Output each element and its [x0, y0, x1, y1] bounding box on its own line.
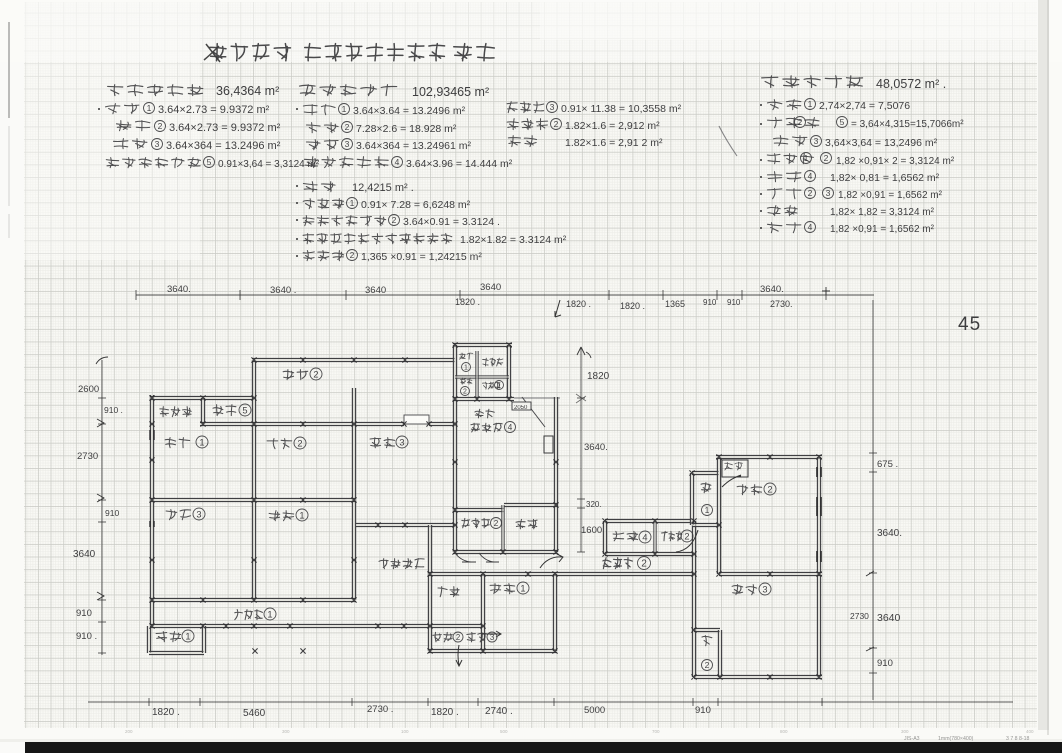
svg-text:1: 1: [350, 198, 355, 208]
svg-text:2050: 2050: [514, 405, 528, 411]
svg-text:1820 .: 1820 .: [152, 707, 180, 718]
svg-text:12,4215 m² .: 12,4215 m² .: [352, 182, 414, 194]
svg-text:2740 .: 2740 .: [485, 706, 513, 717]
svg-text:7.28×2.6 = 18.928 m²: 7.28×2.6 = 18.928 m²: [356, 123, 457, 135]
svg-text:4: 4: [508, 422, 513, 432]
svg-text:1: 1: [267, 609, 272, 619]
svg-text:3640.: 3640.: [167, 284, 191, 295]
svg-text:3.64×364 = 13.2496 m²: 3.64×364 = 13.2496 m²: [166, 140, 281, 152]
svg-text:3640.: 3640.: [877, 528, 902, 539]
svg-text:3: 3: [345, 139, 350, 149]
svg-text:2: 2: [345, 122, 350, 132]
svg-text:2730.: 2730.: [770, 299, 793, 309]
svg-text:3: 3: [155, 139, 160, 149]
svg-text:JIS-A3: JIS-A3: [904, 736, 920, 742]
svg-text:1365: 1365: [665, 299, 685, 309]
svg-text:0.91× 11.38 = 10,3558 m²: 0.91× 11.38 = 10,3558 m²: [561, 103, 682, 115]
svg-text:1,82 ×0,91 = 1,6562 m²: 1,82 ×0,91 = 1,6562 m²: [830, 224, 935, 235]
svg-text:4: 4: [808, 222, 813, 232]
svg-text:675 .: 675 .: [877, 459, 898, 470]
svg-text:1: 1: [299, 510, 304, 520]
svg-text:1,82× 0,81 = 1,6562 m²: 1,82× 0,81 = 1,6562 m²: [830, 172, 940, 184]
svg-text:5460: 5460: [243, 708, 266, 719]
svg-text:5: 5: [242, 405, 247, 415]
svg-text:3.64×2.73 = 9.9372 m²: 3.64×2.73 = 9.9372 m²: [158, 104, 270, 116]
svg-text:1: 1: [520, 583, 525, 593]
svg-text:1.82×1.82 = 3.3124 m²: 1.82×1.82 = 3.3124 m²: [460, 234, 567, 246]
svg-text:910 .: 910 .: [76, 631, 97, 642]
svg-text:4: 4: [642, 532, 647, 542]
svg-text:1: 1: [147, 103, 152, 113]
svg-text:45: 45: [958, 314, 981, 335]
svg-text:910 .: 910 .: [104, 405, 123, 415]
svg-text:2: 2: [705, 660, 710, 670]
svg-text:2: 2: [392, 215, 397, 225]
svg-text:3: 3: [814, 136, 819, 146]
svg-text:48,0572 m² .: 48,0572 m² .: [876, 77, 946, 91]
svg-text:0.91×3,64 = 3,3124 m²: 0.91×3,64 = 3,3124 m²: [218, 159, 320, 170]
svg-text:300: 300: [901, 729, 909, 734]
svg-text:3: 3: [399, 437, 404, 447]
svg-text:1600: 1600: [581, 525, 602, 536]
svg-text:100: 100: [401, 729, 409, 734]
svg-text:2: 2: [824, 153, 829, 163]
svg-text:910: 910: [76, 608, 92, 619]
svg-text:910: 910: [703, 298, 717, 307]
svg-text:3640.: 3640.: [760, 284, 784, 295]
svg-text:400: 400: [1026, 729, 1034, 734]
svg-text:3640 .: 3640 .: [270, 285, 296, 296]
svg-text:910: 910: [727, 298, 741, 307]
svg-text:2: 2: [641, 559, 647, 570]
svg-text:3640.: 3640.: [584, 442, 608, 453]
svg-text:800: 800: [780, 729, 788, 734]
svg-text:3.64×364 = 13.24961 m²: 3.64×364 = 13.24961 m²: [356, 140, 472, 152]
svg-text:2: 2: [684, 531, 689, 541]
svg-text:1: 1: [804, 153, 809, 163]
svg-text:1820 .: 1820 .: [566, 299, 591, 309]
svg-text:2: 2: [158, 121, 163, 131]
svg-text:2: 2: [350, 250, 355, 260]
svg-text:300: 300: [282, 729, 290, 734]
svg-text:0.91× 7.28 = 6,6248 m²: 0.91× 7.28 = 6,6248 m²: [361, 199, 471, 211]
svg-text:2: 2: [767, 484, 772, 494]
svg-text:910: 910: [695, 705, 711, 716]
svg-text:2: 2: [456, 633, 460, 642]
svg-text:3: 3: [762, 584, 767, 594]
svg-text:2: 2: [297, 438, 302, 448]
svg-text:= 3,64×4,315=15,7066m²: = 3,64×4,315=15,7066m²: [851, 119, 964, 130]
svg-text:3.64×3.96 = 14.444 m²: 3.64×3.96 = 14.444 m²: [406, 158, 513, 170]
svg-text:1.82×1.6 = 2,91 2 m²: 1.82×1.6 = 2,91 2 m²: [565, 137, 663, 149]
svg-text:3 7 8 8-18: 3 7 8 8-18: [1006, 736, 1029, 742]
svg-text:1: 1: [705, 505, 710, 515]
svg-text:5: 5: [840, 117, 845, 127]
svg-text:2: 2: [808, 188, 813, 198]
svg-text:4: 4: [808, 171, 813, 181]
svg-text:1820 .: 1820 .: [620, 301, 645, 311]
svg-text:2: 2: [494, 518, 499, 528]
svg-text:5000: 5000: [584, 705, 605, 716]
svg-text:910: 910: [877, 658, 893, 669]
svg-text:500: 500: [500, 729, 508, 734]
svg-text:3.64×0.91 = 3.3124 .: 3.64×0.91 = 3.3124 .: [403, 216, 500, 228]
svg-text:1: 1: [199, 437, 204, 447]
svg-text:1,365 ×0.91 = 1,24215 m²: 1,365 ×0.91 = 1,24215 m²: [361, 251, 482, 263]
svg-text:2: 2: [798, 117, 803, 127]
svg-text:1: 1: [497, 383, 501, 390]
svg-text:2: 2: [463, 389, 467, 396]
svg-text:3640: 3640: [480, 282, 501, 293]
svg-text:1820 .: 1820 .: [431, 707, 459, 718]
svg-text:3640: 3640: [365, 285, 386, 296]
svg-text:1,82 ×0,91× 2 = 3,3124 m²: 1,82 ×0,91× 2 = 3,3124 m²: [836, 156, 955, 167]
svg-text:320.: 320.: [586, 500, 602, 509]
svg-text:2730: 2730: [850, 611, 869, 621]
svg-text:2600: 2600: [78, 384, 99, 395]
svg-text:1: 1: [185, 631, 190, 641]
svg-text:200: 200: [125, 729, 133, 734]
svg-text:3,64×3,64 = 13,2496 m²: 3,64×3,64 = 13,2496 m²: [825, 137, 938, 149]
svg-text:3640: 3640: [73, 549, 96, 560]
svg-text:4: 4: [395, 157, 400, 167]
svg-text:2730 .: 2730 .: [367, 704, 393, 715]
svg-text:1: 1: [342, 104, 347, 114]
svg-text:3: 3: [196, 509, 201, 519]
svg-text:1820 .: 1820 .: [455, 297, 480, 307]
svg-text:1,82 ×0,91 = 1,6562 m²: 1,82 ×0,91 = 1,6562 m²: [838, 190, 943, 201]
svg-text:2: 2: [554, 119, 559, 129]
svg-text:1: 1: [464, 365, 468, 372]
svg-text:2: 2: [313, 369, 318, 379]
svg-text:1820: 1820: [587, 371, 610, 382]
svg-text:700: 700: [652, 729, 660, 734]
svg-text:3.64×3.64 = 13.2496 m²: 3.64×3.64 = 13.2496 m²: [353, 105, 466, 117]
svg-text:36,4364 m²: 36,4364 m²: [216, 84, 279, 98]
svg-text:102,93465 m²: 102,93465 m²: [412, 85, 489, 99]
svg-text:3: 3: [826, 188, 831, 198]
svg-text:1: 1: [808, 99, 813, 109]
svg-text:3.64×2.73 = 9.9372 m²: 3.64×2.73 = 9.9372 m²: [169, 122, 281, 134]
svg-text:2730: 2730: [77, 451, 98, 462]
svg-text:5: 5: [207, 157, 212, 167]
svg-text:3: 3: [550, 102, 555, 112]
svg-text:2,74×2,74 = 7,5076: 2,74×2,74 = 7,5076: [819, 100, 910, 112]
svg-text:3: 3: [490, 633, 494, 642]
svg-text:1,82× 1,82 = 3,3124 m²: 1,82× 1,82 = 3,3124 m²: [830, 207, 935, 218]
svg-text:910: 910: [105, 508, 119, 518]
svg-text:1mm(780×400): 1mm(780×400): [938, 736, 974, 742]
svg-text:3640: 3640: [877, 612, 901, 624]
svg-text:1.82×1.6 = 2,912 m²: 1.82×1.6 = 2,912 m²: [565, 120, 660, 132]
